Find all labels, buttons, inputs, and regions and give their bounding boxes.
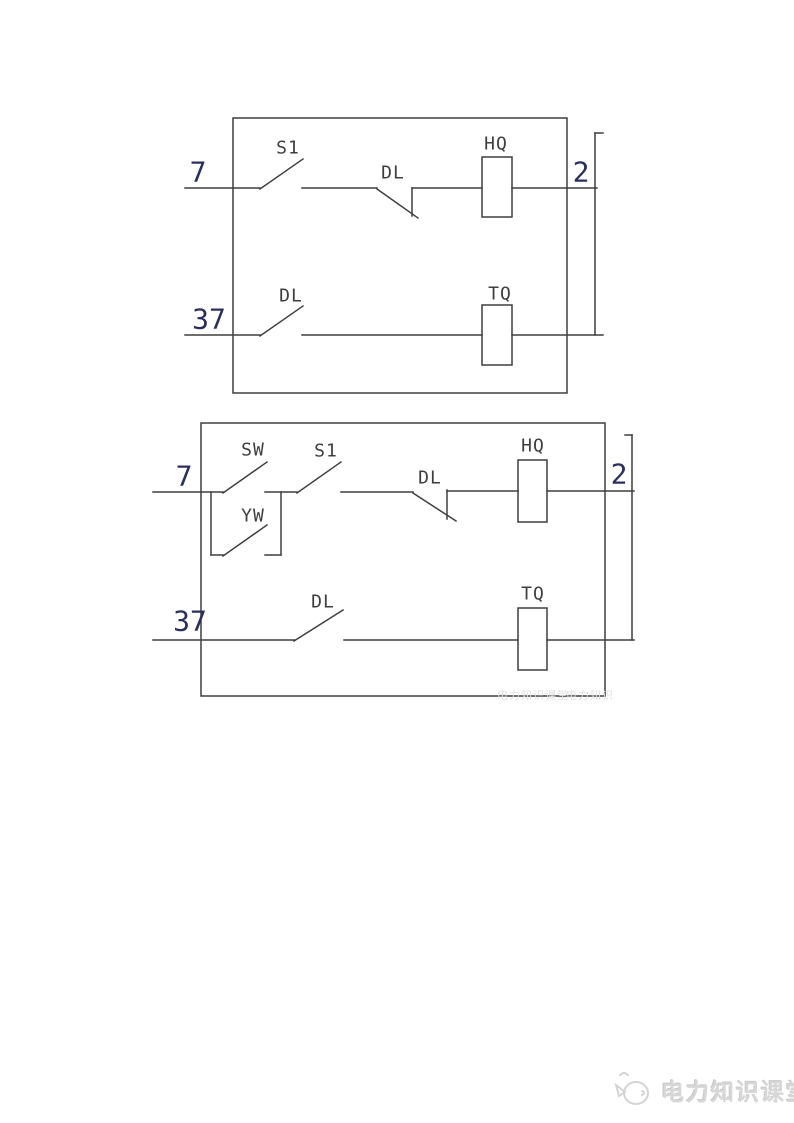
contact-dl-label: DL [381, 163, 405, 184]
brand-logo-icon [612, 1067, 654, 1113]
terminal-7-label: 7 [190, 156, 207, 189]
terminal-37-label: 37 [173, 605, 207, 638]
switch-sw-blade [223, 462, 267, 493]
terminal-7-label: 7 [176, 460, 193, 493]
coil-tq-box [482, 305, 512, 365]
contact-dl2-label: DL [279, 286, 303, 307]
diagram1-basic-control-circuit [185, 118, 603, 393]
watermark-text: 电力知识课堂 [497, 687, 569, 703]
coil-tq-label: TQ [488, 284, 512, 305]
coil-hq-box [518, 460, 547, 522]
contact-dl2-blade [260, 306, 303, 336]
document-page: { "colors": { "line": "#3f3f3f", "label_… [0, 0, 794, 1123]
switch-s1-blade [260, 159, 303, 189]
brand-footer: 电力知识课堂 [612, 1066, 794, 1114]
coil-hq-label: HQ [521, 436, 545, 457]
watermark-text: 电力知识课堂 [566, 687, 612, 703]
switch-s1-label: S1 [276, 138, 300, 159]
switch-sw-label: SW [241, 440, 265, 461]
coil-tq-box [518, 608, 547, 670]
switch-s1-blade [297, 462, 341, 493]
switch-s1-label: S1 [314, 441, 338, 462]
brand-name: 电力知识课堂 [661, 1073, 794, 1107]
coil-hq-box [482, 157, 512, 217]
contact-dl2-blade [294, 610, 343, 641]
contact-dl-label: DL [418, 468, 442, 489]
switch-yw-blade [223, 525, 267, 556]
contact-dl-blade [413, 493, 456, 521]
diagram2-control-circuit-with-sw-yw [153, 423, 634, 696]
terminal-2-label: 2 [611, 458, 628, 491]
diagram1-frame [233, 118, 567, 393]
contact-dl2-label: DL [311, 592, 335, 613]
coil-tq-label: TQ [521, 584, 545, 605]
terminal-37-label: 37 [192, 303, 226, 336]
terminal-2-label: 2 [573, 156, 590, 189]
coil-hq-label: HQ [484, 134, 508, 155]
switch-yw-label: YW [241, 506, 265, 527]
diagram2-frame [201, 423, 605, 696]
